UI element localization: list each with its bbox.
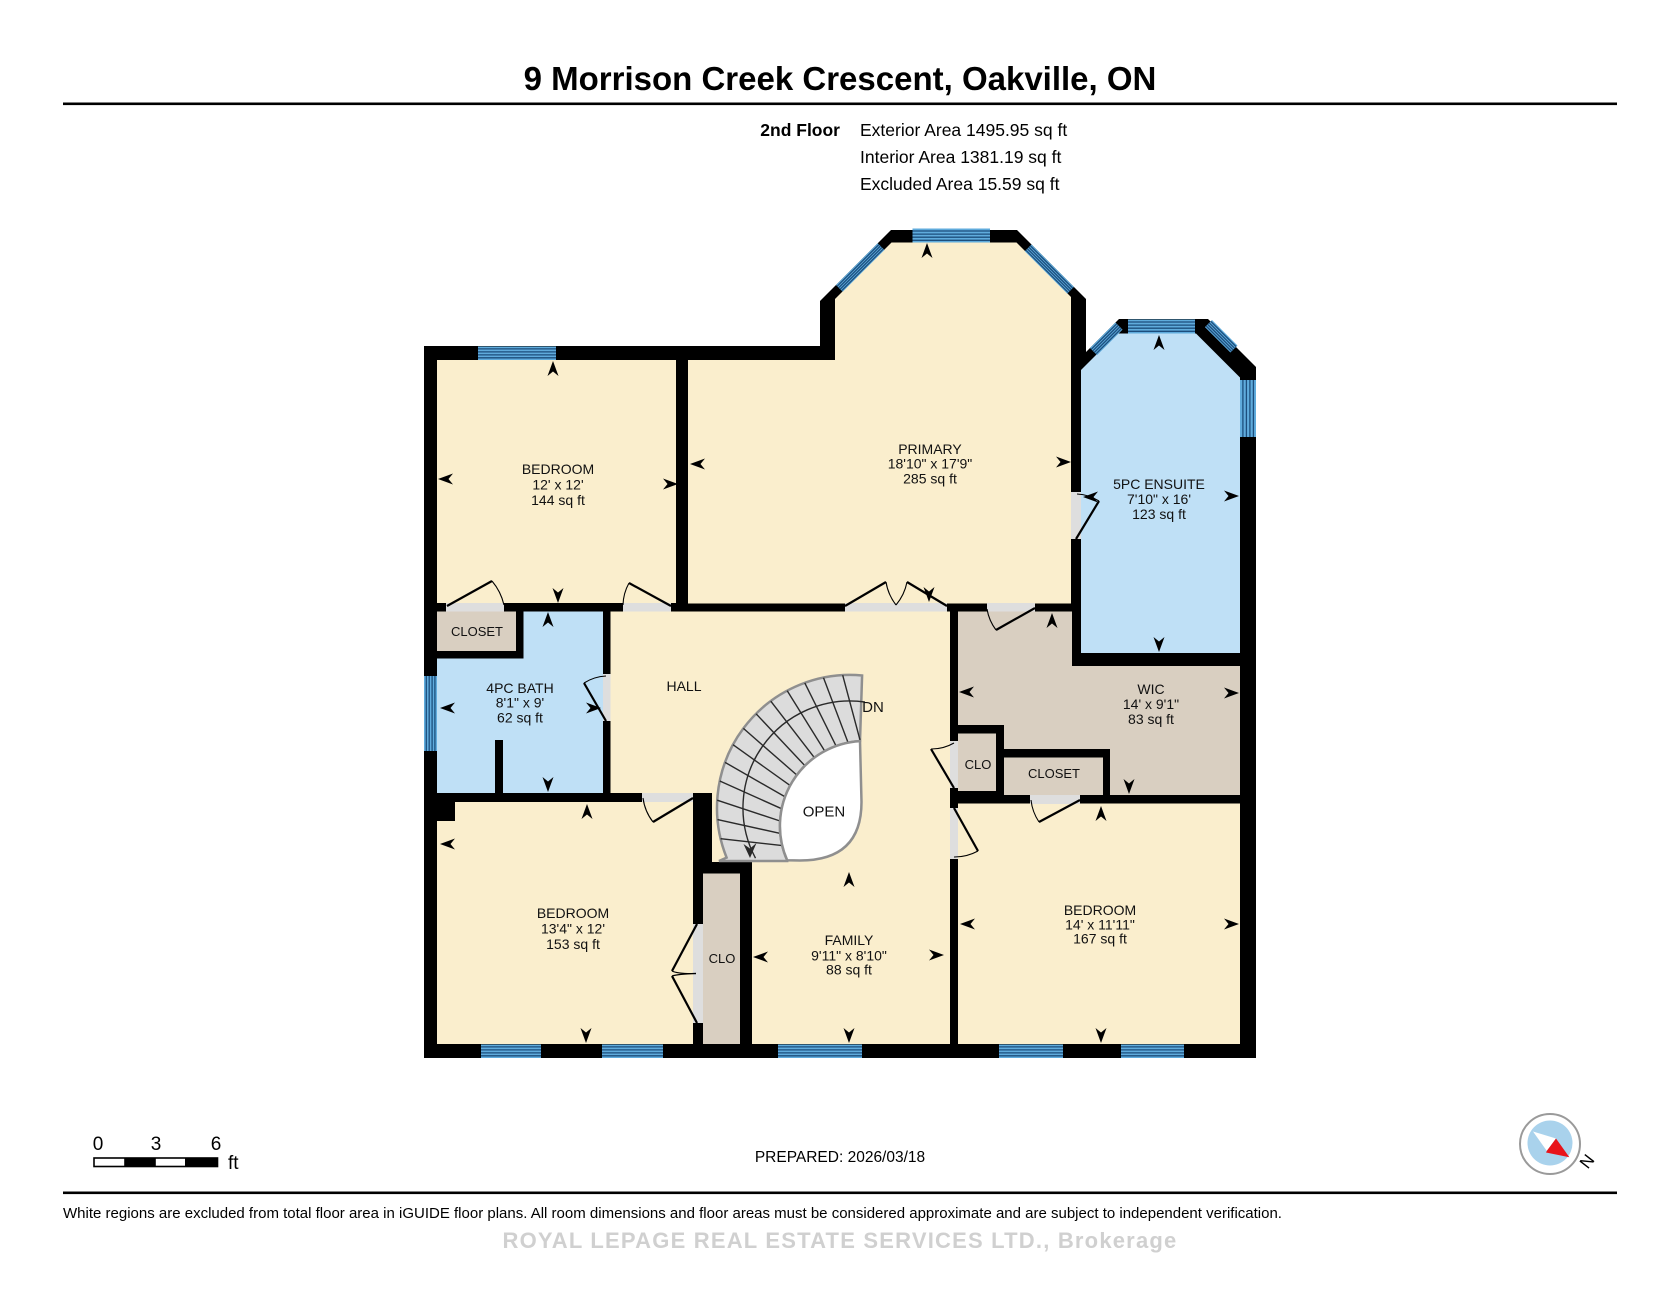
svg-text:13'4" x 12': 13'4" x 12' <box>541 921 605 937</box>
svg-text:ROYAL LEPAGE REAL ESTATE SERVI: ROYAL LEPAGE REAL ESTATE SERVICES LTD., … <box>503 1228 1178 1253</box>
svg-text:HALL: HALL <box>666 678 701 694</box>
svg-text:18'10" x 17'9": 18'10" x 17'9" <box>888 456 973 472</box>
svg-text:12' x 12': 12' x 12' <box>532 477 583 493</box>
svg-text:Excluded Area 15.59 sq ft: Excluded Area 15.59 sq ft <box>860 174 1060 194</box>
svg-text:DN: DN <box>862 699 884 716</box>
svg-text:167 sq ft: 167 sq ft <box>1073 931 1127 947</box>
svg-text:6: 6 <box>211 1134 222 1155</box>
svg-text:8'1" x 9': 8'1" x 9' <box>496 695 544 711</box>
svg-text:285 sq ft: 285 sq ft <box>903 471 957 487</box>
svg-text:White regions are excluded fro: White regions are excluded from total fl… <box>63 1205 1282 1222</box>
svg-text:CLOSET: CLOSET <box>451 624 503 639</box>
svg-text:OPEN: OPEN <box>803 804 846 821</box>
svg-text:14' x 9'1": 14' x 9'1" <box>1123 696 1179 712</box>
svg-text:Interior Area 1381.19 sq ft: Interior Area 1381.19 sq ft <box>860 147 1062 167</box>
svg-text:BEDROOM: BEDROOM <box>537 905 609 921</box>
svg-text:CLO: CLO <box>709 951 736 966</box>
svg-text:PREPARED: 2026/03/18: PREPARED: 2026/03/18 <box>755 1149 925 1166</box>
svg-text:7'10" x 16': 7'10" x 16' <box>1127 491 1191 507</box>
svg-text:Exterior Area 1495.95 sq ft: Exterior Area 1495.95 sq ft <box>860 120 1067 140</box>
svg-text:88 sq ft: 88 sq ft <box>826 962 872 978</box>
svg-text:ft: ft <box>228 1153 239 1174</box>
svg-text:153 sq ft: 153 sq ft <box>546 936 600 952</box>
svg-text:5PC ENSUITE: 5PC ENSUITE <box>1113 476 1205 492</box>
svg-text:CLO: CLO <box>965 757 992 772</box>
svg-text:0: 0 <box>93 1134 104 1155</box>
svg-text:9 Morrison Creek Crescent, Oak: 9 Morrison Creek Crescent, Oakville, ON <box>524 60 1157 97</box>
svg-text:2nd Floor: 2nd Floor <box>760 120 840 140</box>
svg-text:83 sq ft: 83 sq ft <box>1128 711 1174 727</box>
svg-text:WIC: WIC <box>1137 681 1164 697</box>
svg-text:3: 3 <box>151 1134 162 1155</box>
svg-text:123 sq ft: 123 sq ft <box>1132 506 1186 522</box>
svg-text:FAMILY: FAMILY <box>825 932 874 948</box>
svg-text:BEDROOM: BEDROOM <box>522 461 594 477</box>
svg-text:CLOSET: CLOSET <box>1028 766 1080 781</box>
svg-text:144 sq ft: 144 sq ft <box>531 492 585 508</box>
svg-text:62 sq ft: 62 sq ft <box>497 710 543 726</box>
